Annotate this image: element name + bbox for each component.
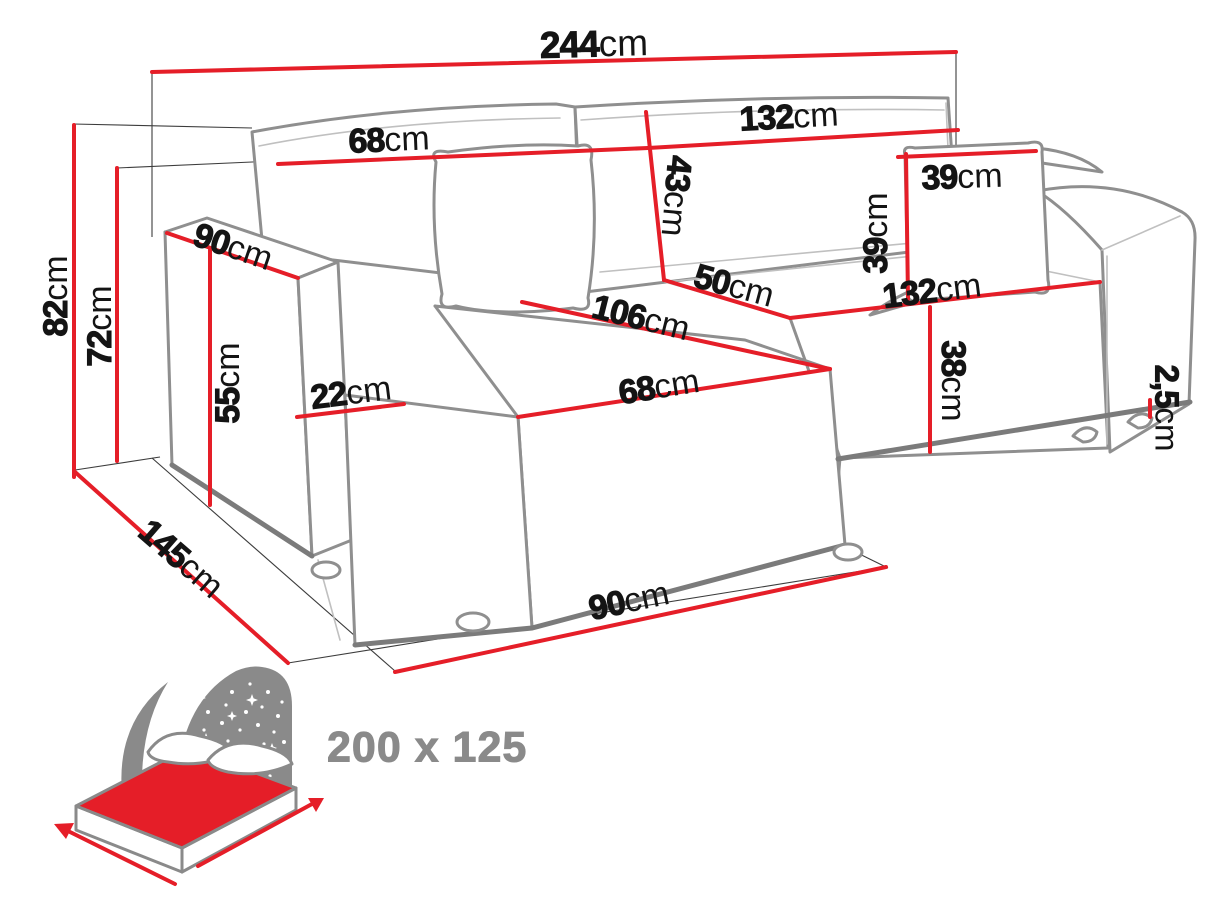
dim-unit: cm	[934, 376, 972, 421]
dim-label-armrest-height: 55cm	[211, 342, 245, 423]
dimension-diagram: 244cm 68cm 132cm 43cm 39cm 39cm 90cm 82c…	[0, 0, 1214, 911]
leg-front-right	[834, 544, 862, 560]
dim-label-total-height: 82cm	[39, 255, 73, 336]
dim-label-leg-height: 2,5cm	[1151, 365, 1184, 452]
dim-unit: cm	[792, 95, 839, 135]
dim-label-back-right-width: 132cm	[739, 97, 840, 136]
dim-value: 38	[934, 340, 972, 376]
dim-label-seat-height: 38cm	[936, 340, 970, 421]
dim-label-total-width: 244cm	[540, 24, 649, 64]
dim-label-armrest-width: 22cm	[309, 371, 394, 415]
dim-unit: cm	[654, 190, 696, 238]
dim-label-back-left-width: 68cm	[348, 121, 431, 159]
dim-value: 244	[539, 23, 599, 65]
dim-value: 72	[81, 331, 119, 367]
dim-value: 39	[921, 158, 958, 197]
dim-label-pillow-height: 39cm	[859, 192, 893, 273]
diagram-canvas	[0, 0, 1214, 911]
dim-value: 2,5	[1149, 365, 1186, 408]
leg-front-left	[312, 562, 340, 578]
dim-label-backrest-height: 43cm	[656, 154, 697, 238]
dim-unit: cm	[344, 369, 394, 412]
guide-total-height	[73, 124, 252, 128]
dim-label-pillow-width: 39cm	[921, 159, 1003, 196]
dim-unit: cm	[598, 22, 648, 64]
right-pillow-flare-top	[1036, 148, 1102, 172]
bed-sleeping-function-icon	[54, 667, 324, 885]
dim-value: 82	[37, 301, 75, 337]
sleeping-area-label: 200 x 125	[327, 724, 527, 773]
dim-value: 22	[308, 375, 348, 417]
chaise-back-cushion	[434, 145, 595, 312]
dim-unit: cm	[957, 157, 1004, 197]
dim-value: 43	[657, 154, 698, 193]
dim-unit: cm	[934, 266, 984, 309]
dim-unit: cm	[37, 255, 75, 300]
dim-value: 55	[209, 388, 247, 424]
leg-front-mid	[457, 613, 489, 631]
chaise-front-face	[345, 395, 532, 645]
dim-unit: cm	[1149, 407, 1186, 451]
dim-value: 132	[881, 272, 939, 316]
dim-unit: cm	[209, 342, 247, 387]
dim-label-frame-height: 72cm	[83, 285, 117, 366]
dim-value: 39	[857, 238, 895, 274]
dim-unit: cm	[383, 119, 430, 159]
dim-value: 132	[739, 98, 795, 139]
dim-unit: cm	[857, 192, 895, 237]
dim-value: 68	[616, 369, 657, 412]
dim-value: 68	[348, 121, 385, 161]
dim-unit: cm	[651, 362, 702, 407]
dim-unit: cm	[81, 285, 119, 330]
